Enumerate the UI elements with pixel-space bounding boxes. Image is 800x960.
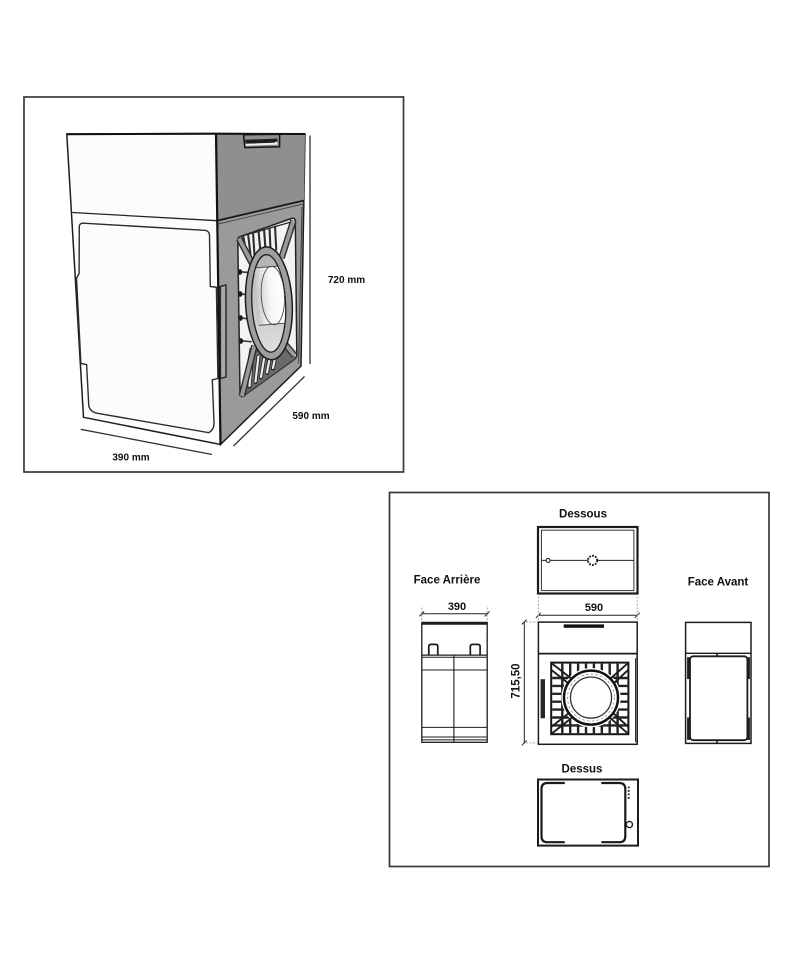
svg-text:715,50: 715,50 <box>511 663 523 698</box>
svg-text:Face Avant: Face Avant <box>688 577 749 589</box>
svg-text:Face Arrière: Face Arrière <box>414 575 481 587</box>
svg-text:590: 590 <box>585 602 603 614</box>
svg-text:390 mm: 390 mm <box>112 452 149 463</box>
svg-text:720 mm: 720 mm <box>328 275 365 286</box>
svg-text:Dessus: Dessus <box>562 764 603 776</box>
svg-text:390: 390 <box>448 601 466 613</box>
svg-text:Dessous: Dessous <box>559 509 607 521</box>
svg-text:590 mm: 590 mm <box>292 411 329 422</box>
